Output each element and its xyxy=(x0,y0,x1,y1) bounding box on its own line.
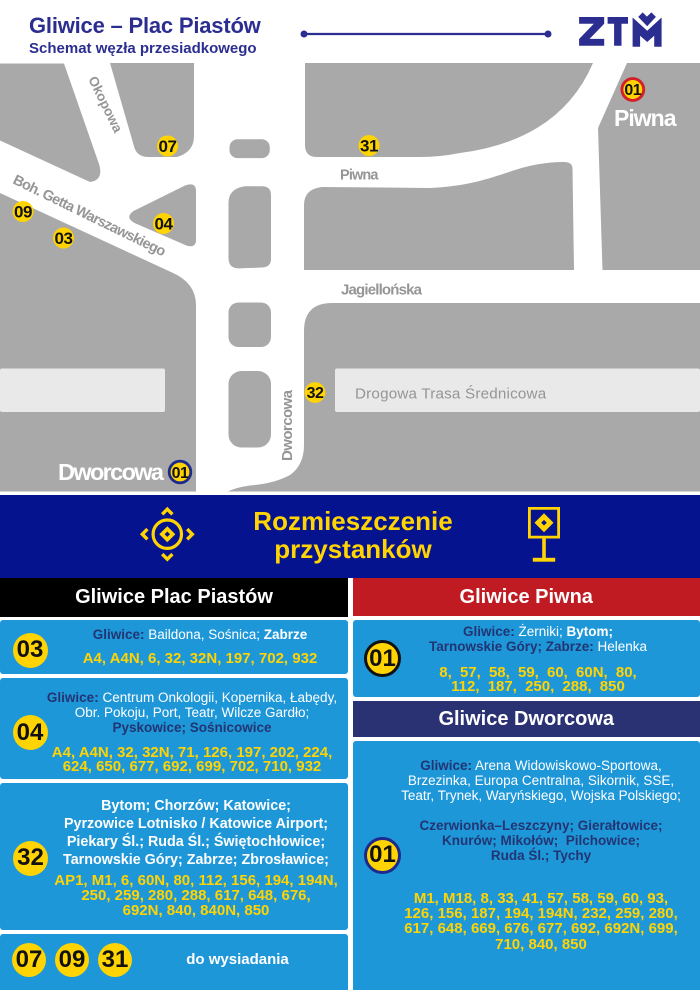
svg-text:31: 31 xyxy=(360,137,378,156)
svg-text:01: 01 xyxy=(624,82,641,99)
svg-text:07: 07 xyxy=(159,137,177,156)
svg-text:09: 09 xyxy=(14,203,32,222)
svg-text:Dworcowa: Dworcowa xyxy=(58,459,165,485)
svg-text:Piwna: Piwna xyxy=(340,168,379,184)
svg-text:04: 04 xyxy=(155,215,174,234)
svg-text:Drogowa Trasa Średnicowa: Drogowa Trasa Średnicowa xyxy=(355,385,547,403)
svg-text:01: 01 xyxy=(172,465,189,482)
svg-text:Jagiellońska: Jagiellońska xyxy=(341,282,423,299)
svg-text:32: 32 xyxy=(307,385,324,402)
svg-text:Piwna: Piwna xyxy=(614,105,677,131)
svg-text:03: 03 xyxy=(55,229,73,248)
svg-text:Dworcowa: Dworcowa xyxy=(279,389,296,461)
